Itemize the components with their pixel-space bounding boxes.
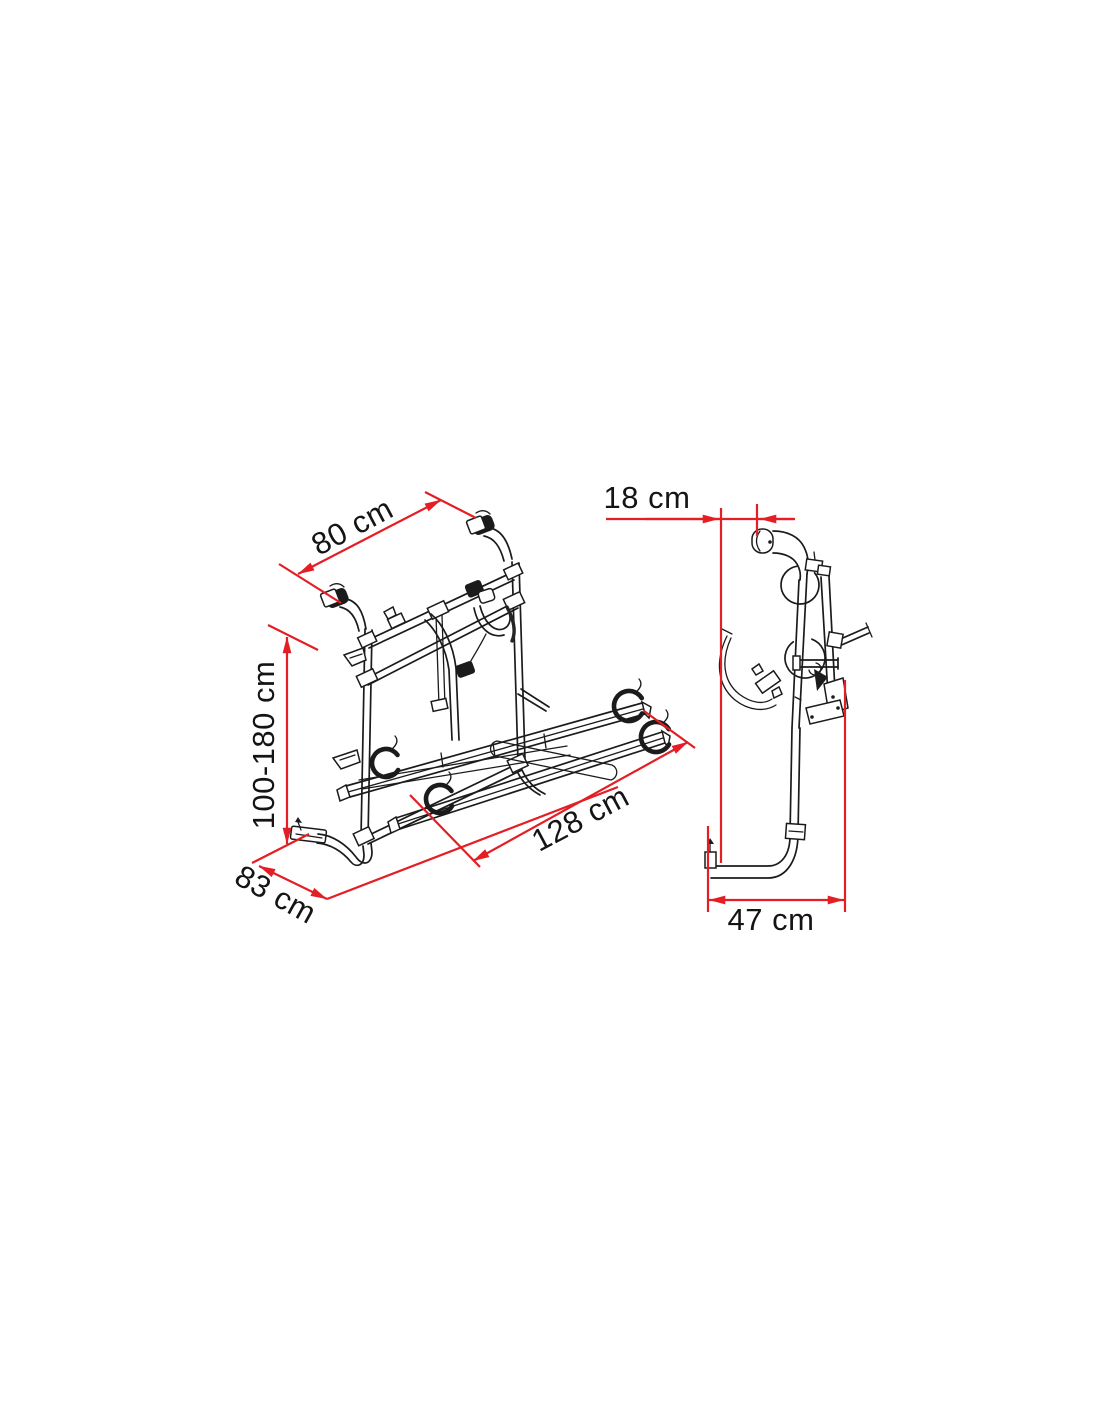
rail-end-cap xyxy=(388,817,400,833)
rail-end-cap xyxy=(337,785,350,801)
wheel-strap-1 xyxy=(367,736,405,782)
rail-clip-upper xyxy=(344,648,366,666)
label-wall-offset: 18 cm xyxy=(604,480,691,515)
rail-support-frame xyxy=(359,734,570,789)
label-height-range: 100-180 cm xyxy=(246,661,281,830)
bracket-tube-right xyxy=(484,528,512,561)
leg-tube xyxy=(711,728,800,878)
label-foot-depth: 47 cm xyxy=(728,902,815,937)
diagram-canvas: 80 cm 18 cm 100-180 cm 128 cm 83 cm 47 c… xyxy=(0,0,1100,1422)
bracket-ubolt xyxy=(330,584,344,587)
main-vertical-tube xyxy=(792,574,807,728)
label-bottom-width: 83 cm xyxy=(229,858,322,931)
side-view-rack xyxy=(705,529,872,878)
cable-cleat xyxy=(752,664,782,698)
bracket-ubolt xyxy=(476,511,490,514)
rail-clip-lower xyxy=(333,750,360,769)
wall-end-cap xyxy=(752,529,773,553)
foot-bracket-left xyxy=(290,817,326,843)
top-clamp xyxy=(805,552,830,576)
label-rail-length: 128 cm xyxy=(526,778,635,858)
technical-drawing: 80 cm 18 cm 100-180 cm 128 cm 83 cm 47 c… xyxy=(0,0,1100,1422)
foot-wall-tab xyxy=(705,838,716,868)
safety-cable xyxy=(719,629,776,709)
midbar-clamp xyxy=(384,607,405,628)
top-arm-tube xyxy=(773,531,808,580)
label-top-width: 80 cm xyxy=(306,491,399,563)
side-strap-arm xyxy=(827,623,872,648)
dimension-labels: 80 cm 18 cm 100-180 cm 128 cm 83 cm 47 c… xyxy=(229,480,814,937)
leg-clamp xyxy=(785,823,805,839)
mounting-bracket-left xyxy=(320,584,350,610)
foot-bolt xyxy=(295,817,302,823)
strap-end-buckle xyxy=(454,660,475,678)
